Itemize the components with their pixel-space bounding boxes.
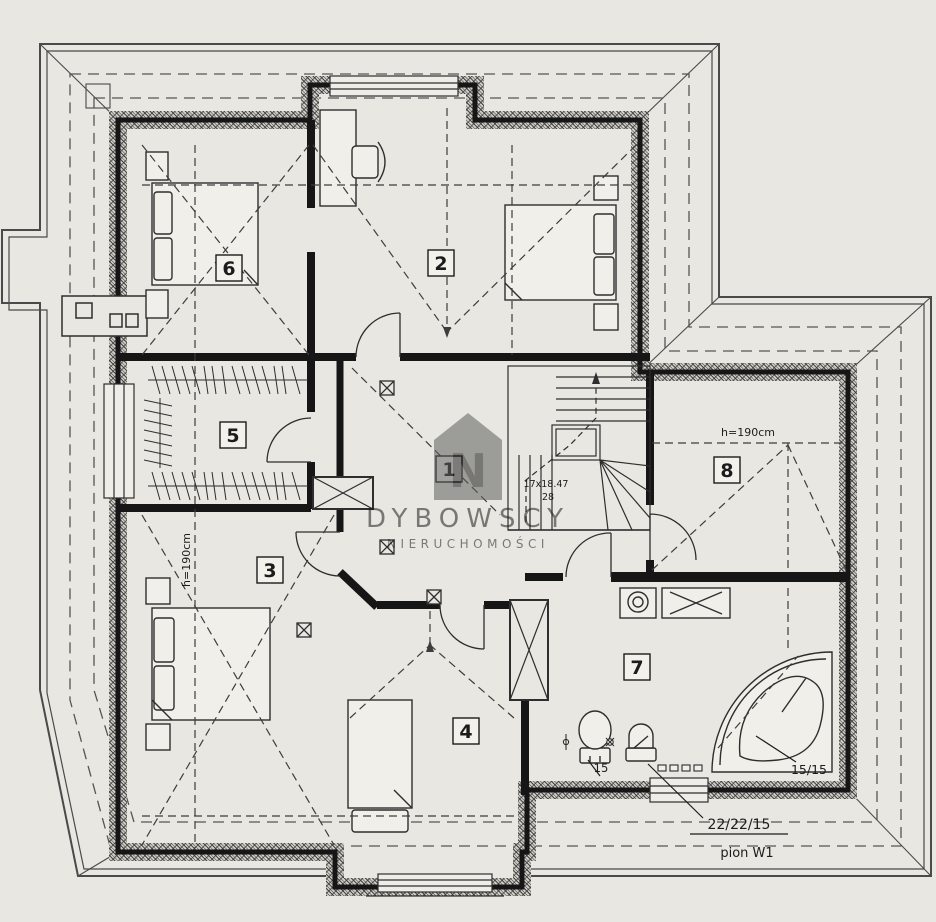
label-room-7: 7 (624, 654, 650, 680)
duct-shaft (510, 600, 548, 700)
slope-arrow-up (426, 640, 434, 652)
stairs-dim-2: 28 (542, 492, 554, 503)
toilet (579, 711, 611, 763)
label-room-2: 2 (428, 250, 454, 276)
brand-sub: NIERUCHOMOŚCI (387, 536, 549, 551)
washing-machine (620, 588, 656, 618)
slope-arrow-down (443, 327, 451, 338)
svg-text:N: N (449, 444, 488, 498)
label-room-5: 5 (220, 422, 246, 448)
label-room-8: 8 (714, 457, 740, 483)
door-room4 (440, 605, 484, 649)
label-room-3: 3 (257, 557, 283, 583)
sink-counter (662, 588, 730, 618)
bed-room4 (348, 700, 412, 832)
bathroom-fixtures (563, 588, 832, 772)
furniture (144, 110, 618, 832)
label-room-6: 6 (216, 255, 242, 281)
knee-height-left: h=190cm (180, 533, 193, 587)
svg-text:4: 4 (459, 721, 472, 743)
floor-plan-sheet: 1 2 3 4 5 6 7 8 17x18.47 28 h=190cm h=19… (0, 0, 936, 922)
svg-text:8: 8 (720, 460, 733, 482)
riser-label: pion W1 (720, 846, 773, 861)
corner-bathtub (712, 652, 832, 772)
desk-room2 (320, 110, 385, 206)
stairs-dim-1: 17x18.47 (524, 479, 569, 490)
svg-text:7: 7 (630, 657, 643, 679)
door-bathroom (566, 533, 611, 577)
bed-room2 (505, 176, 618, 330)
roof-corner-marker (86, 84, 110, 108)
stair-direction-arrow (592, 372, 600, 384)
window-bathroom (650, 778, 708, 802)
bidet (626, 724, 656, 761)
brand-name: DYBOWSCY (366, 504, 570, 534)
svg-text:3: 3 (263, 560, 276, 582)
door-room8 (650, 514, 696, 560)
svg-text:6: 6 (222, 258, 235, 280)
bed-room3 (146, 578, 270, 750)
knee-height-right: h=190cm (721, 426, 775, 439)
bed-room6 (146, 152, 258, 318)
brand-logo: N (434, 413, 502, 500)
chimney (62, 296, 147, 336)
window-top-dormer (330, 76, 458, 96)
dim-15: 15 (594, 761, 609, 775)
door-room5 (267, 418, 311, 462)
svg-text:5: 5 (226, 425, 239, 447)
door-room6 (356, 313, 400, 357)
window-left-wall (104, 384, 134, 498)
svg-text:2: 2 (434, 253, 447, 275)
duct-shaft (313, 477, 373, 509)
door-room3 (296, 532, 340, 576)
dim-15-15: 15/15 (791, 762, 827, 777)
floor-plan-drawing: 1 2 3 4 5 6 7 8 17x18.47 28 h=190cm h=19… (0, 0, 936, 922)
radiator (658, 765, 702, 771)
label-room-4: 4 (453, 718, 479, 744)
dim-22-22-15: 22/22/15 (708, 817, 771, 833)
